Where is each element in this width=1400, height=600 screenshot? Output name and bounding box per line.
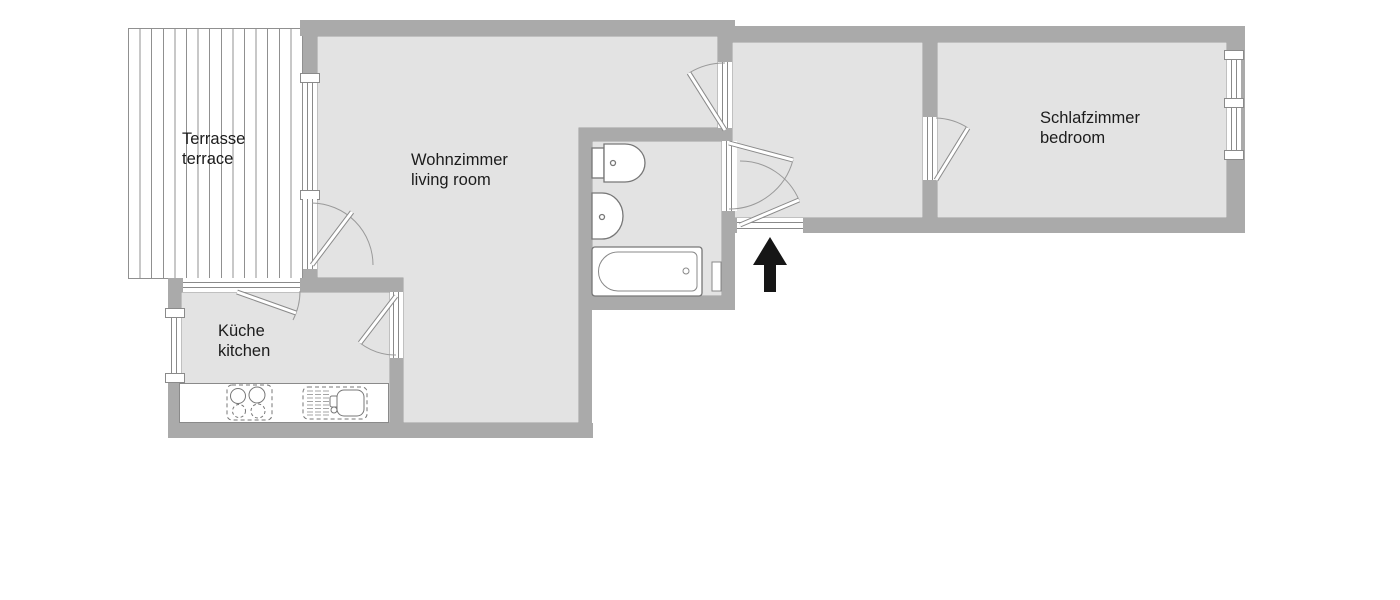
room-name-en: terrace bbox=[182, 150, 245, 170]
room-name-de: Terrasse bbox=[182, 130, 245, 150]
door-swing-arcs bbox=[293, 63, 968, 355]
bathtub bbox=[592, 247, 702, 296]
door-arc bbox=[360, 343, 396, 355]
kitchen-sink bbox=[303, 387, 367, 419]
door-arc bbox=[689, 63, 725, 73]
room-name-de: Wohnzimmer bbox=[411, 151, 508, 171]
room-label-kitchen: Küche kitchen bbox=[218, 322, 270, 361]
radiator bbox=[712, 262, 721, 291]
room-name-en: bedroom bbox=[1040, 129, 1140, 149]
room-name-de: Küche bbox=[218, 322, 270, 342]
fixtures-and-doors bbox=[0, 0, 1400, 600]
stove bbox=[227, 385, 272, 420]
entrance-arrow bbox=[753, 237, 787, 292]
bathroom-sink bbox=[592, 193, 623, 239]
room-name-en: kitchen bbox=[218, 342, 270, 362]
room-label-bedroom: Schlafzimmer bedroom bbox=[1040, 109, 1140, 148]
door-arc bbox=[936, 118, 968, 128]
room-label-terrace: Terrasse terrace bbox=[182, 130, 245, 169]
toilet bbox=[592, 144, 645, 182]
room-label-living-room: Wohnzimmer living room bbox=[411, 151, 508, 190]
room-name-de: Schlafzimmer bbox=[1040, 109, 1140, 129]
door-arc bbox=[740, 161, 799, 200]
door-arc bbox=[293, 291, 300, 320]
floor-plan: Terrasse terrace Wohnzimmer living room … bbox=[0, 0, 1400, 600]
door-arc bbox=[729, 160, 793, 209]
room-name-en: living room bbox=[411, 171, 508, 191]
